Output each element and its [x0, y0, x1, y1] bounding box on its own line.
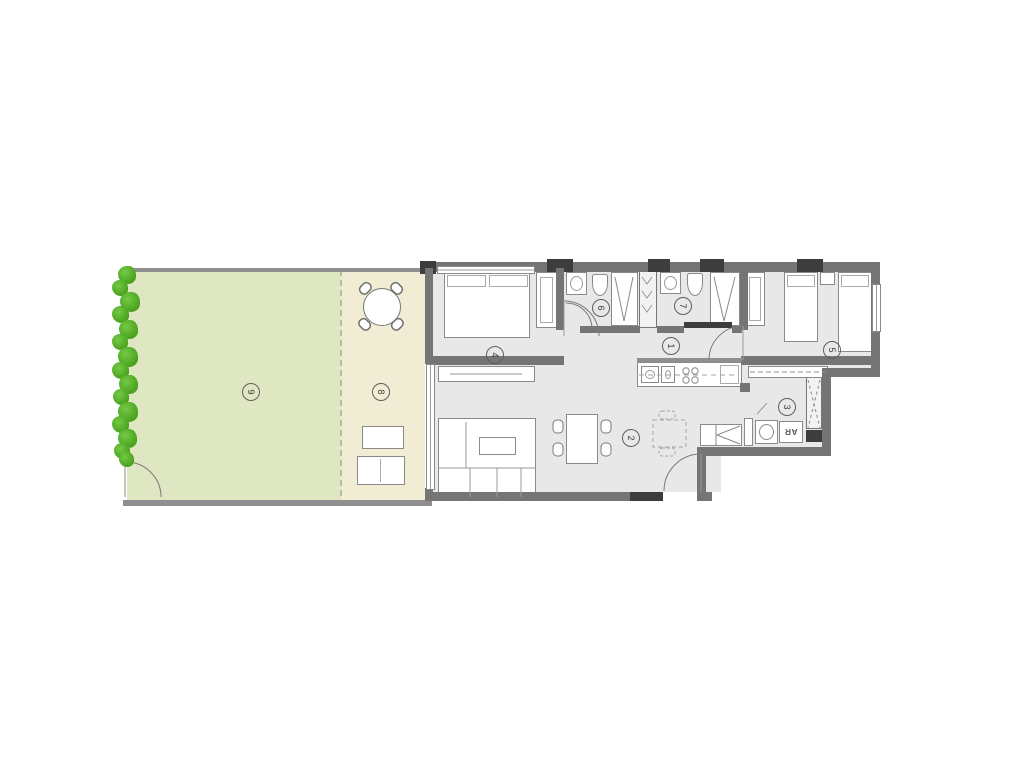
duct-shaft-bathrooms — [639, 268, 657, 328]
room-label-bedroom1: 4 — [486, 346, 504, 364]
terrace-round-table — [363, 288, 401, 326]
coffee-table — [479, 437, 516, 455]
terrace-lounger — [357, 456, 405, 485]
wall-dark-seg-2 — [648, 259, 670, 272]
room-label-terrace: 8 — [372, 383, 390, 401]
room-label-kitchen: 3 — [778, 398, 796, 416]
room-label-bathroom1: 6 — [592, 299, 610, 317]
single-bed-right-pillow — [841, 275, 869, 287]
wall-bottom-kitchen — [697, 447, 831, 456]
wardrobe-bedroom1-inner — [540, 277, 553, 323]
bath1-shower — [611, 272, 638, 326]
sideboard — [438, 366, 535, 382]
wall-counter-back — [637, 358, 742, 362]
wall-bedroom1-right — [556, 268, 564, 330]
bath2-shower — [710, 272, 740, 326]
wall-bath2-bottom-right — [732, 326, 742, 333]
bed-pillow-right — [489, 275, 528, 287]
dishwasher-unit — [700, 424, 742, 446]
kitchen-end-unit — [720, 365, 739, 384]
wardrobe-bedroom2-inner — [749, 277, 761, 321]
terrace-lounger-divider — [380, 459, 381, 482]
room-label-hall: 1 — [662, 337, 680, 355]
duct-block — [806, 430, 822, 442]
duct-shaft-kitchen — [806, 377, 822, 429]
wall-dark-seg-3 — [700, 259, 724, 272]
bath2-sink — [660, 272, 681, 294]
dining-table — [566, 414, 598, 464]
room-label-garden: 9 — [242, 383, 260, 401]
bath2-sliding-door — [684, 322, 732, 328]
terrace-side-table — [362, 426, 404, 449]
wall-garden-bottom — [123, 500, 432, 506]
kitchen-sink-1 — [641, 366, 659, 383]
bedroom1-window — [437, 266, 535, 274]
wall-bottom-living — [428, 492, 630, 501]
living-terrace-glazing — [426, 364, 435, 490]
bedroom2-window — [872, 284, 881, 332]
garden-area — [127, 272, 341, 500]
ar-appliance-label: AR — [779, 421, 803, 443]
wall-garden-top — [123, 268, 425, 272]
wall-bottom-dark-threshold — [630, 492, 663, 501]
room-label-bathroom2: 7 — [674, 297, 692, 315]
wall-bedroom2-bottom — [741, 356, 880, 365]
wall-bath2-bottom-left — [657, 326, 684, 333]
floor-plan-page: AR — [0, 0, 1024, 768]
wall-terrace-interior-upper — [425, 268, 433, 364]
room-label-bedroom2: 5 — [823, 341, 841, 359]
bed-pillow-left — [447, 275, 486, 287]
room-label-living: 2 — [622, 429, 640, 447]
wall-bath2-right — [740, 262, 748, 330]
sliding-wardrobe-strip — [748, 366, 828, 378]
washing-machine — [755, 420, 778, 444]
wall-counter-stub — [740, 383, 750, 392]
bath1-sink — [566, 272, 587, 295]
nightstand — [820, 272, 835, 285]
kitchen-sink-2 — [661, 366, 675, 383]
single-bed-left-pillow — [787, 275, 815, 287]
tall-cabinet — [744, 418, 753, 446]
wall-right-lower — [822, 374, 831, 456]
bush-icon — [119, 452, 134, 467]
wall-bath1-bottom — [580, 326, 640, 333]
wall-dark-seg-4 — [797, 259, 823, 272]
corner-sofa — [438, 418, 536, 498]
